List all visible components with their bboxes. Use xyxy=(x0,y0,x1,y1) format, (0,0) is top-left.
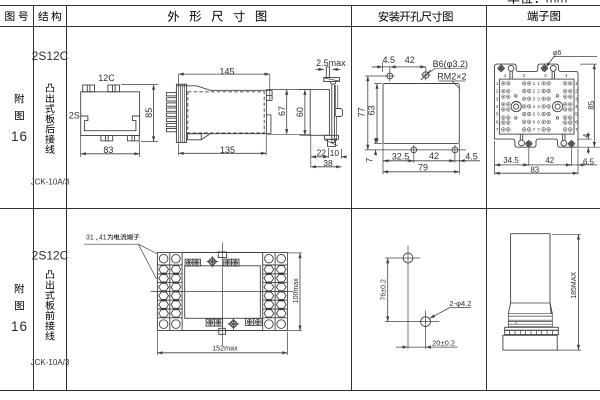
svg-text:1: 1 xyxy=(533,81,536,86)
svg-text:10: 10 xyxy=(330,148,340,158)
svg-text:2: 2 xyxy=(496,89,499,94)
svg-text:76±0.2: 76±0.2 xyxy=(380,279,387,300)
svg-text:7: 7 xyxy=(533,127,536,132)
svg-text:2: 2 xyxy=(575,89,578,94)
svg-text:2S: 2S xyxy=(69,111,80,121)
svg-text:5: 5 xyxy=(537,112,540,117)
svg-text:2: 2 xyxy=(523,73,526,78)
svg-text:6: 6 xyxy=(537,119,540,124)
svg-text:152max: 152max xyxy=(212,344,238,353)
svg-text:2S12C: 2S12C xyxy=(32,249,69,263)
svg-text:JCK-10A/3: JCK-10A/3 xyxy=(31,177,70,186)
svg-text:2: 2 xyxy=(533,89,536,94)
svg-text:22: 22 xyxy=(317,148,327,158)
svg-text:2.5max: 2.5max xyxy=(316,58,346,68)
svg-text:100max: 100max xyxy=(293,278,300,303)
svg-text:4: 4 xyxy=(537,104,540,109)
svg-text:85: 85 xyxy=(144,108,154,118)
svg-text:32.5: 32.5 xyxy=(392,152,410,162)
svg-text:145: 145 xyxy=(219,67,234,77)
svg-text:1: 1 xyxy=(575,81,578,86)
svg-text:4.5: 4.5 xyxy=(383,55,396,65)
svg-text:60: 60 xyxy=(295,107,305,117)
svg-text:77: 77 xyxy=(356,107,366,117)
svg-text:3: 3 xyxy=(575,96,578,101)
svg-text:7: 7 xyxy=(365,158,375,163)
svg-text:mm: mm xyxy=(546,0,568,5)
svg-text:4: 4 xyxy=(575,104,578,109)
svg-text:20±0.2: 20±0.2 xyxy=(432,339,455,348)
svg-text:185MAX: 185MAX xyxy=(571,272,578,299)
svg-text:6: 6 xyxy=(496,119,499,124)
svg-text:1: 1 xyxy=(496,81,499,86)
svg-text:85: 85 xyxy=(587,100,596,109)
svg-text:2: 2 xyxy=(537,89,540,94)
svg-text:63: 63 xyxy=(366,105,376,115)
svg-text:6.5: 6.5 xyxy=(583,157,595,166)
svg-text:83: 83 xyxy=(530,165,539,174)
svg-text:1: 1 xyxy=(504,73,507,78)
svg-text:5: 5 xyxy=(575,112,578,117)
svg-text:6: 6 xyxy=(533,119,536,124)
svg-text:4: 4 xyxy=(583,134,590,138)
svg-text:67: 67 xyxy=(277,106,287,116)
svg-text:7: 7 xyxy=(575,127,578,132)
svg-text:φ6: φ6 xyxy=(553,50,562,57)
svg-text:12C: 12C xyxy=(98,73,115,83)
svg-text:42: 42 xyxy=(429,151,439,161)
svg-text:6: 6 xyxy=(575,119,578,124)
svg-text:4: 4 xyxy=(496,104,499,109)
svg-text:79: 79 xyxy=(418,163,428,173)
svg-text:B6(φ3.2): B6(φ3.2) xyxy=(433,59,468,69)
svg-text:4: 4 xyxy=(565,73,568,78)
svg-text:38: 38 xyxy=(323,158,333,168)
svg-text:16: 16 xyxy=(11,319,28,334)
svg-text:83: 83 xyxy=(103,145,113,155)
svg-text:3: 3 xyxy=(544,73,547,78)
svg-text:5: 5 xyxy=(533,112,536,117)
svg-text:3: 3 xyxy=(496,96,499,101)
svg-text:4.5: 4.5 xyxy=(465,152,478,162)
svg-text:JCK-10A/3: JCK-10A/3 xyxy=(31,358,70,367)
svg-text:5: 5 xyxy=(496,112,499,117)
svg-text:2-φ4.2: 2-φ4.2 xyxy=(449,299,471,308)
svg-text:42: 42 xyxy=(405,55,415,65)
svg-text:1: 1 xyxy=(537,81,540,86)
svg-text:RM2×2: RM2×2 xyxy=(437,72,466,82)
svg-text:41: 41 xyxy=(99,234,107,241)
svg-text:3: 3 xyxy=(533,96,536,101)
svg-text:4: 4 xyxy=(533,104,536,109)
svg-text:2S12C: 2S12C xyxy=(32,49,69,63)
svg-text:135: 135 xyxy=(220,145,235,155)
svg-text:42: 42 xyxy=(545,156,554,165)
svg-text:16: 16 xyxy=(11,129,28,144)
svg-text:34.5: 34.5 xyxy=(503,156,519,165)
svg-text:3: 3 xyxy=(537,96,540,101)
svg-text:7: 7 xyxy=(537,127,540,132)
svg-text:7: 7 xyxy=(496,127,499,132)
svg-text:31: 31 xyxy=(86,234,94,241)
